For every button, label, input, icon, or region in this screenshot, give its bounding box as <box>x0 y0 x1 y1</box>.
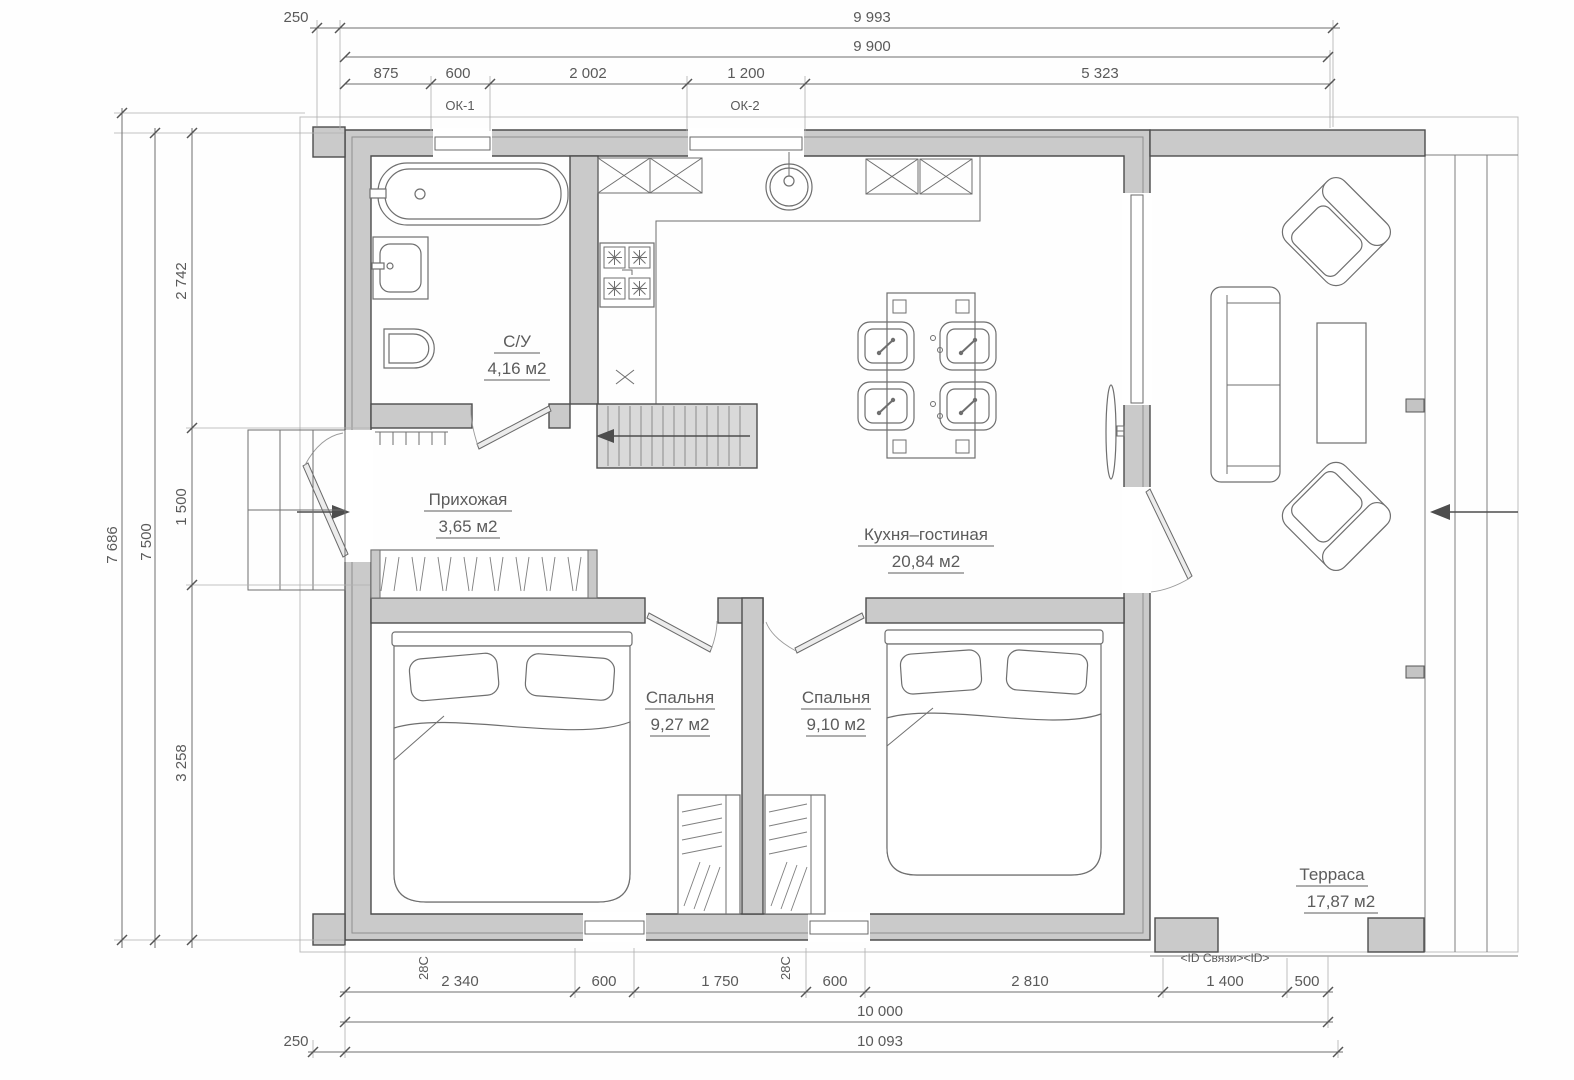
room-label-terrace: Терраса <box>1299 865 1365 884</box>
stairs-icon <box>596 404 757 468</box>
bathroom-south-wall <box>371 404 472 428</box>
tv-icon <box>1106 385 1124 479</box>
closet-icon <box>678 795 740 914</box>
terrace-top-wall <box>1150 130 1425 156</box>
bedroom2-window <box>810 921 868 934</box>
dim-top-seg: 5 323 <box>1081 65 1119 82</box>
radiator-icon <box>375 432 448 445</box>
bathtub-icon <box>370 163 568 225</box>
window-label-ok2: ОК-2 <box>730 98 759 113</box>
room-area-bedroom2: 9,10 м2 <box>807 715 866 734</box>
dim-bottom-seg: 500 <box>1294 973 1319 990</box>
corner-column <box>313 127 345 157</box>
hall-bedroom-wall <box>371 598 645 623</box>
terrace-door-leaf <box>1146 489 1192 579</box>
section-mark: 28С <box>416 956 431 980</box>
living-window <box>1131 195 1143 403</box>
washbasin-icon <box>372 237 428 299</box>
dim-left-axis: 7 500 <box>138 523 155 561</box>
window-ok2 <box>690 137 802 150</box>
bathroom-door-leaf <box>477 406 551 449</box>
closet-icon <box>765 795 825 914</box>
dishwasher-icon <box>616 370 634 384</box>
room-area-terrace: 17,87 м2 <box>1307 892 1375 911</box>
stove-icon <box>600 243 654 307</box>
dim-top-seg: 1 200 <box>727 65 765 82</box>
bed-icon <box>392 632 632 902</box>
window-label-ok1: ОК-1 <box>445 98 474 113</box>
dim-bottom-offset: 250 <box>283 1033 308 1050</box>
dim-top-overall: 9 993 <box>853 9 891 26</box>
dim-top-seg: 875 <box>373 65 398 82</box>
bed-icon <box>885 630 1103 875</box>
dim-left-seg: 2 742 <box>173 262 190 300</box>
room-area-kitchen: 20,84 м2 <box>892 552 960 571</box>
bedroom1-door-leaf <box>647 613 712 652</box>
kitchen-sink-icon <box>766 152 812 210</box>
toilet-icon <box>384 329 434 368</box>
dim-bottom-seg: 600 <box>591 973 616 990</box>
id-link-label: <ID Связи><ID> <box>1181 951 1270 965</box>
room-label-kitchen: Кухня–гостиная <box>864 525 988 544</box>
terrace-column <box>1368 918 1424 952</box>
room-area-wc: 4,16 м2 <box>488 359 547 378</box>
room-label-bedroom2: Спальня <box>802 688 870 707</box>
floor-plan-canvas: 250 9 993 9 900 875 600 2 002 1 200 5 32… <box>0 0 1574 1080</box>
room-label-hall: Прихожая <box>429 490 508 509</box>
dim-bottom-seg: 1 750 <box>701 973 739 990</box>
dim-top-axis: 9 900 <box>853 38 891 55</box>
dim-bottom-axis: 10 000 <box>857 1003 903 1020</box>
dim-top-offset: 250 <box>283 9 308 26</box>
bedrooms-partition <box>742 598 763 914</box>
dim-left-seg: 3 258 <box>173 744 190 782</box>
coffee-table-icon <box>1317 323 1366 443</box>
terrace-door-handle <box>1406 399 1424 412</box>
dim-left-seg: 1 500 <box>173 488 190 526</box>
room-area-bedroom1: 9,27 м2 <box>651 715 710 734</box>
room-label-bedroom1: Спальня <box>646 688 714 707</box>
room-label-wc: С/У <box>503 332 531 351</box>
terrace-door-handle <box>1406 666 1424 678</box>
section-mark: 28С <box>778 956 793 980</box>
dim-bottom-seg: 2 340 <box>441 973 479 990</box>
bedroom2-door-leaf <box>795 613 864 653</box>
dim-top-seg: 600 <box>445 65 470 82</box>
bedroom2-north-wall <box>866 598 1124 623</box>
armchair-icon <box>1277 173 1396 292</box>
bath-kitchen-partition <box>570 156 598 404</box>
dim-bottom-seg: 1 400 <box>1206 973 1244 990</box>
dim-bottom-seg: 2 810 <box>1011 973 1049 990</box>
room-area-hall: 3,65 м2 <box>439 517 498 536</box>
dim-top-seg: 2 002 <box>569 65 607 82</box>
dim-bottom-seg: 600 <box>822 973 847 990</box>
bedroom1-window <box>585 921 644 934</box>
entrance-porch <box>248 430 345 590</box>
dim-left-overall: 7 686 <box>104 526 121 564</box>
armchair-icon <box>1277 457 1396 576</box>
dining-table-icon <box>858 293 996 458</box>
sofa-icon <box>1211 287 1280 482</box>
window-ok1 <box>435 137 490 150</box>
terrace-column <box>1155 918 1218 952</box>
dim-bottom-overall: 10 093 <box>857 1033 903 1050</box>
hall-wardrobe-icon <box>371 550 597 598</box>
floor-plan-drawing: 250 9 993 9 900 875 600 2 002 1 200 5 32… <box>0 0 1574 1080</box>
